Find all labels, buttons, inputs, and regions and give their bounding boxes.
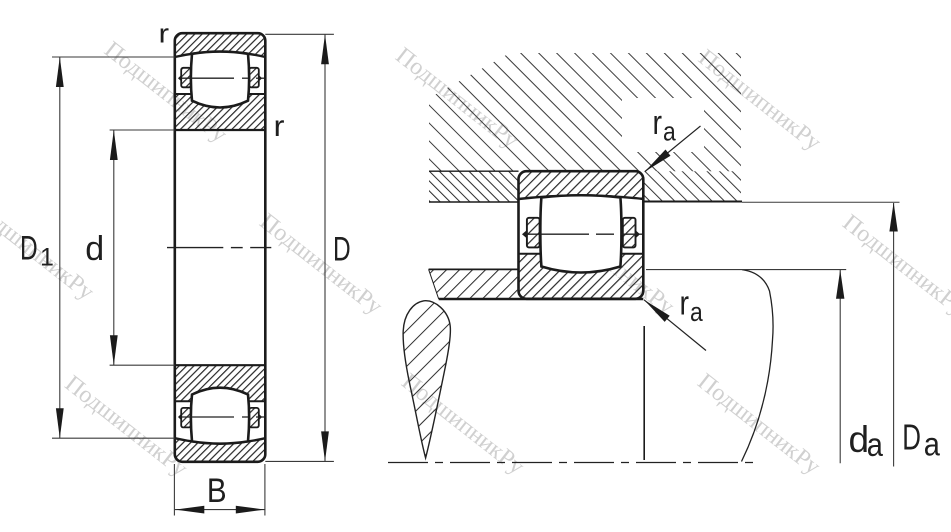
svg-text:r: r [274, 108, 285, 142]
svg-text:a: a [924, 426, 941, 463]
svg-text:r: r [653, 104, 663, 142]
svg-text:D: D [902, 417, 921, 457]
svg-text:1: 1 [40, 244, 54, 272]
svg-text:a: a [867, 426, 884, 463]
svg-text:r: r [680, 284, 690, 322]
svg-text:a: a [690, 297, 703, 327]
svg-text:B: B [207, 471, 227, 509]
svg-text:r: r [159, 20, 170, 49]
svg-text:a: a [663, 117, 676, 147]
svg-text:D: D [333, 231, 351, 269]
svg-text:D: D [20, 230, 38, 268]
svg-text:d: d [85, 230, 104, 268]
